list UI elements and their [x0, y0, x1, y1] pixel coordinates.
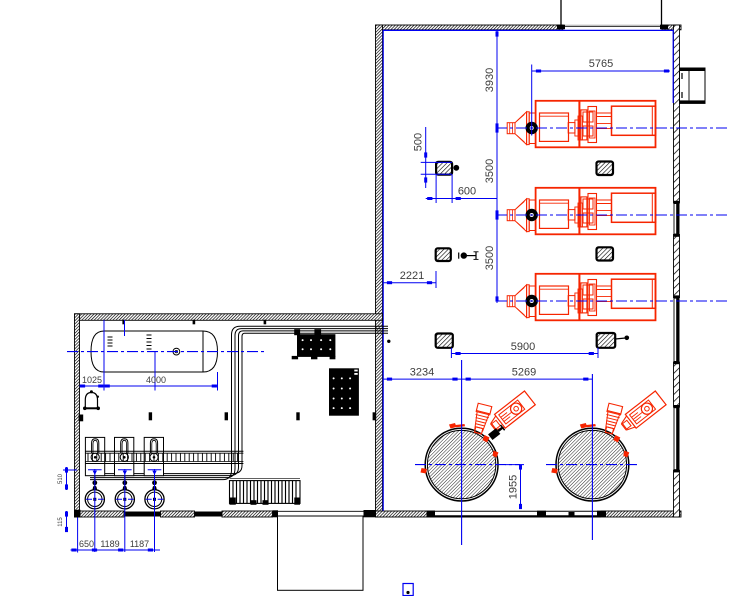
svg-text:2221: 2221 [400, 270, 424, 282]
svg-text:5900: 5900 [511, 341, 535, 353]
svg-text:1025: 1025 [82, 375, 102, 385]
svg-text:5765: 5765 [589, 58, 613, 70]
svg-text:510: 510 [58, 473, 64, 484]
svg-text:1187: 1187 [130, 539, 149, 549]
svg-text:115: 115 [58, 517, 64, 527]
svg-text:4000: 4000 [146, 375, 166, 385]
svg-text:1955: 1955 [508, 475, 520, 499]
svg-text:5269: 5269 [512, 366, 536, 378]
svg-text:3500: 3500 [484, 246, 496, 270]
svg-text:600: 600 [458, 186, 476, 198]
svg-text:3500: 3500 [484, 159, 496, 183]
svg-text:3930: 3930 [484, 68, 496, 92]
svg-text:1189: 1189 [100, 539, 119, 549]
svg-text:3234: 3234 [410, 366, 434, 378]
svg-text:650: 650 [79, 539, 94, 549]
svg-text:500: 500 [413, 133, 425, 151]
